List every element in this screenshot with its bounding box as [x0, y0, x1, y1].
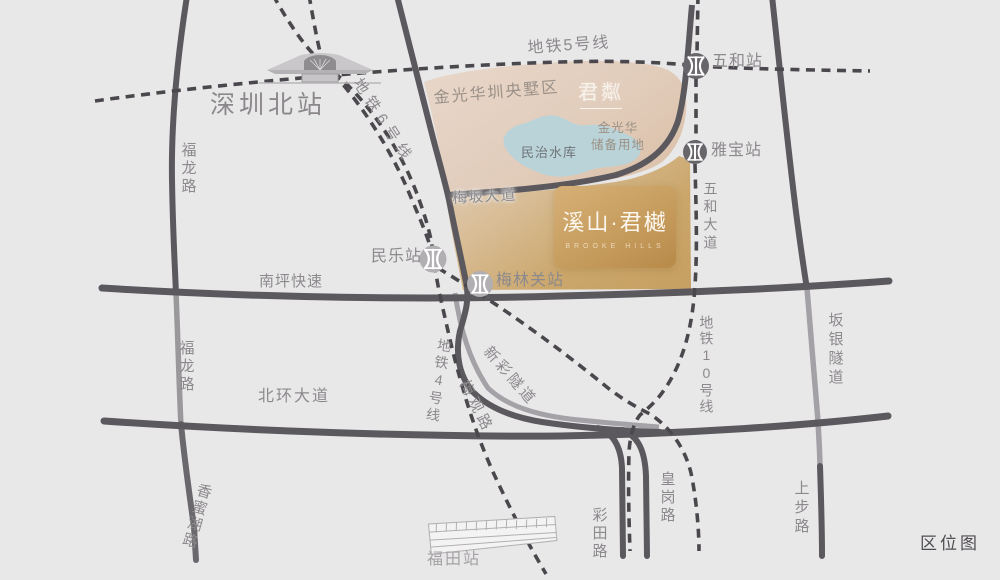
nanping-expressway-label: 南坪快速	[259, 274, 323, 291]
metro-line-10-label: 地铁10号线	[698, 315, 713, 415]
location-map: 溪山·君樾 BROOKE HILLS 君粼 深圳北站 福田站 五和站 雅宝站 民…	[0, 0, 1000, 580]
junlin-brand-logo: 君粼	[578, 76, 624, 109]
reserve-label-line1: 金光华	[586, 120, 650, 137]
shangbu-road-label: 上步路	[792, 480, 809, 537]
fulong-road-label-upper: 福龙路	[179, 142, 196, 196]
fulong-road-label-lower: 福龙路	[177, 340, 194, 394]
caitian-road-label: 彩田路	[590, 507, 607, 561]
metro-line-6-track-upper	[334, 72, 433, 254]
jinguanghua-reserve-label: 金光华 储备用地	[586, 120, 650, 154]
shenzhen-north-station-label: 深圳北站	[210, 92, 326, 120]
wuhe-station-label: 五和站	[712, 53, 763, 71]
project-logo-card: 溪山·君樾 BROOKE HILLS	[554, 186, 676, 268]
map-title: 区位图	[920, 535, 980, 554]
meiban-avenue-label: 梅坂大道	[452, 188, 517, 208]
beihuan-avenue-label: 北环大道	[258, 388, 330, 406]
metro-feed-right-track	[309, 0, 321, 56]
shangbu-road	[820, 466, 822, 556]
project-name-en: BROOKE HILLS	[565, 243, 664, 250]
yabao-station-icon	[683, 140, 707, 164]
banyin-tunnel-label: 坂银隧道	[826, 312, 843, 388]
reserve-label-line2: 储备用地	[586, 137, 650, 154]
junlin-brand-text: 君粼	[578, 76, 624, 105]
huanggang-road-label: 皇岗路	[658, 471, 675, 525]
wuhe-station-icon	[683, 53, 709, 79]
futian-station-label: 福田站	[427, 551, 481, 569]
minzhi-reservoir-label: 民治水库	[521, 146, 577, 160]
meilinguan-station-icon	[467, 271, 493, 297]
minle-station-label: 民乐站	[371, 248, 422, 266]
banyin-tunnel-road	[807, 289, 820, 468]
wuhe-avenue-label: 五和大道	[702, 181, 717, 253]
junlin-brand-rule	[580, 108, 622, 109]
banyin-approach-road	[772, 0, 807, 289]
metro-feed-left-track	[273, 0, 317, 58]
minle-station-icon	[420, 246, 447, 273]
meilinguan-station-label: 梅林关站	[496, 272, 564, 290]
yabao-station-label: 雅宝站	[711, 142, 762, 160]
project-name: 溪山·君樾	[562, 205, 667, 237]
